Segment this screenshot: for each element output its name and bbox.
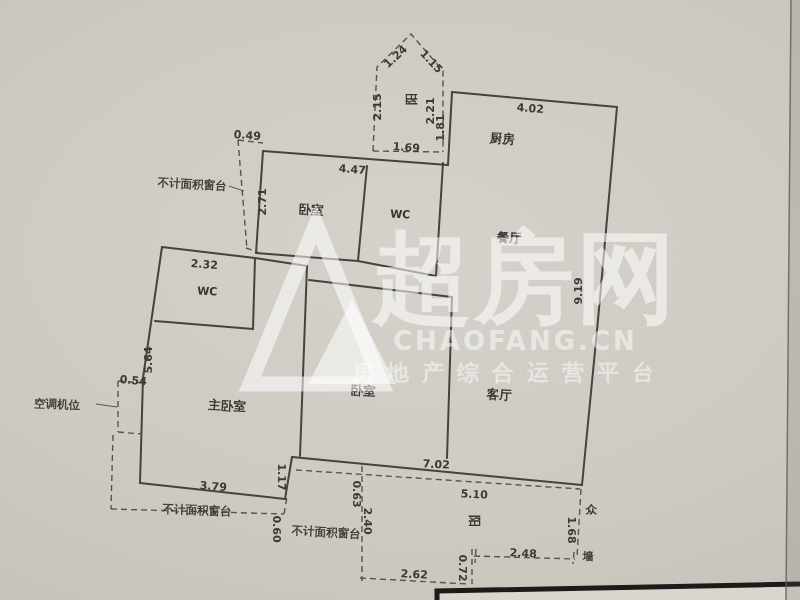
dim-7-02: 7.02 [422, 457, 450, 471]
dim-5-10: 5.10 [460, 487, 488, 501]
wall-wc1-bottom [358, 261, 436, 276]
leader-sill-topleft [229, 186, 244, 191]
dim-0-63: 0.63 [350, 480, 363, 507]
dim-2-71: 2.71 [256, 188, 269, 215]
label-sill-bottom-left: 不计面积窗台 [161, 502, 231, 518]
dim-1-68: 1.68 [565, 516, 578, 543]
dim-1-17: 1.17 [275, 463, 288, 490]
dim-0-54: 0.54 [119, 373, 147, 388]
label-ac-unit: 空调机位 [34, 396, 81, 412]
dim-0-49: 0.49 [233, 128, 261, 143]
balcony-248-tick-right [573, 552, 574, 564]
leader-lines [96, 186, 244, 407]
wall-right [582, 107, 617, 485]
wall-midbed-top [309, 280, 452, 297]
room-bedroom-middle: 卧室 [350, 382, 376, 398]
dim-2-40: 2.40 [361, 507, 374, 534]
dim-2-48: 2.48 [509, 546, 537, 560]
wall-kitchen-left [448, 92, 452, 165]
wall-living-divider [447, 297, 452, 458]
wall-wc1-right [436, 163, 443, 276]
dim-1-81: 1.81 [434, 114, 447, 141]
room-balcony-bottom: 阳 [467, 515, 482, 528]
label-sill-top-left: 不计面积窗台 [156, 175, 227, 193]
wall-midbed-left [300, 266, 307, 456]
dim-9-19: 9.19 [572, 277, 585, 304]
wall-bed-wc1-divider [358, 166, 367, 261]
sill-topleft-outer [238, 140, 247, 249]
room-balcony-top: 阳 [404, 93, 419, 106]
balcony-510-line [296, 470, 580, 489]
dim-3-79: 3.79 [199, 479, 227, 494]
dim-2-62: 2.62 [400, 567, 428, 581]
label-sill-bottom-middle: 不计面积窗台 [290, 523, 361, 541]
annotation-labels: 不计面积窗台 不计面积窗台 不计面积窗台 空调机位 [34, 175, 361, 541]
dim-0-72: 0.72 [456, 554, 469, 581]
ac-box-bottom [118, 432, 142, 434]
wall-char-bottom: 墙 [582, 550, 595, 563]
dim-0-60: 0.60 [270, 515, 283, 542]
wall-interior-long [162, 247, 307, 266]
dim-4-47: 4.47 [338, 162, 366, 177]
room-bedroom-top: 卧室 [298, 201, 324, 217]
dim-2-15: 2.15 [371, 93, 384, 120]
dimension-labels: 0.49 1.69 4.02 4.47 2.32 0.54 3.79 7.02 … [119, 42, 585, 581]
room-wc-top: WC [390, 207, 411, 221]
floor-plan-photo: 卧室 WC 厨房 餐厅 客厅 卧室 主卧室 WC 阳 阳 众 墙 不计面积窗台 … [0, 0, 800, 600]
room-kitchen: 厨房 [488, 130, 515, 146]
dim-1-24: 1.24 [381, 42, 410, 70]
wall-wc2-bottom [155, 321, 253, 329]
room-dining: 餐厅 [495, 229, 522, 245]
room-master-bedroom: 主卧室 [208, 397, 247, 414]
dim-1-69: 1.69 [392, 140, 420, 155]
leader-ac-unit [96, 404, 117, 407]
dim-5-64: 5.64 [142, 346, 155, 373]
wall-wc2-right [253, 258, 255, 329]
sill-bottomleft-left [111, 435, 113, 509]
dim-1-15: 1.15 [417, 47, 445, 76]
dim-2-32: 2.32 [190, 257, 218, 272]
wall-char-top: 众 [585, 503, 598, 516]
dim-4-02: 4.02 [516, 101, 544, 116]
room-wc-master: WC [197, 284, 218, 298]
room-labels: 卧室 WC 厨房 餐厅 客厅 卧室 主卧室 WC 阳 阳 众 墙 [197, 93, 598, 563]
room-living: 客厅 [485, 386, 512, 402]
floor-plan-drawing: 卧室 WC 厨房 餐厅 客厅 卧室 主卧室 WC 阳 阳 众 墙 不计面积窗台 … [0, 0, 800, 600]
